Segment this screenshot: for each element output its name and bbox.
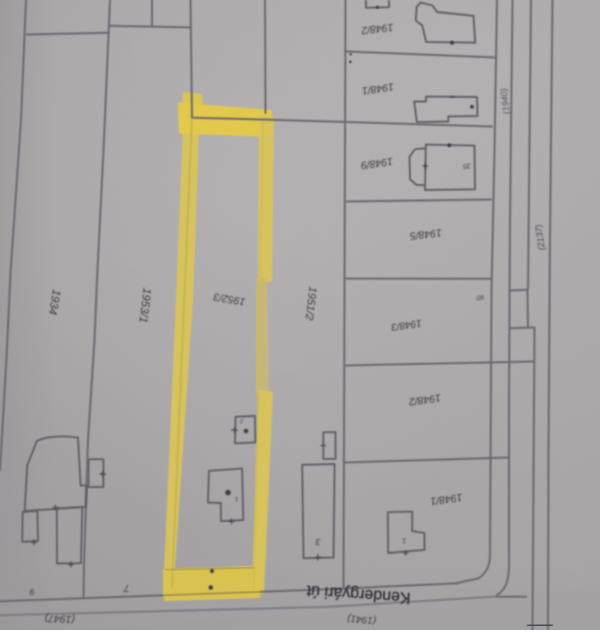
svg-text:35: 35 — [462, 161, 471, 169]
svg-text:3: 3 — [315, 537, 320, 547]
svg-text:9: 9 — [29, 587, 34, 597]
svg-text:1: 1 — [402, 536, 407, 543]
svg-text:1: 1 — [235, 495, 239, 501]
svg-text:60: 60 — [476, 293, 485, 301]
svg-text:(1947): (1947) — [44, 612, 75, 626]
svg-text:2: 2 — [240, 417, 245, 424]
svg-text:7: 7 — [123, 582, 129, 593]
